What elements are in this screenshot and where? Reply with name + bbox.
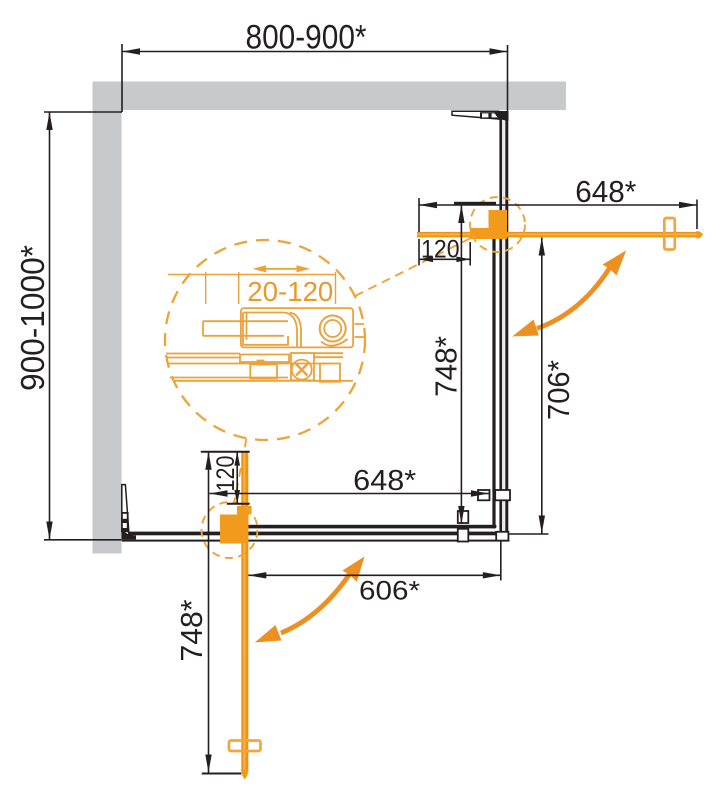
svg-text:706*: 706* [541, 360, 576, 420]
svg-text:800-900*: 800-900* [246, 19, 367, 57]
svg-text:748*: 748* [174, 600, 209, 662]
svg-text:900-1000*: 900-1000* [14, 245, 51, 391]
svg-text:120: 120 [212, 456, 240, 492]
svg-text:748*: 748* [429, 336, 464, 397]
svg-text:648*: 648* [353, 465, 416, 497]
svg-text:606*: 606* [359, 576, 420, 606]
svg-text:120: 120 [421, 235, 460, 263]
svg-text:20-120: 20-120 [247, 276, 333, 307]
svg-text:648*: 648* [575, 174, 636, 209]
